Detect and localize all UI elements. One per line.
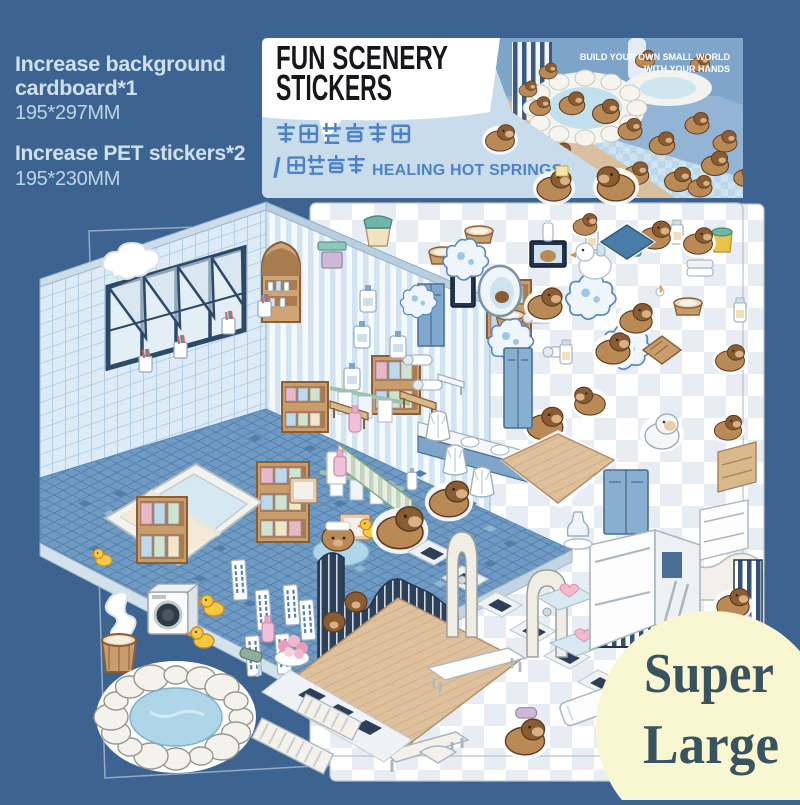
svg-text:Increase PET stickers*2: Increase PET stickers*2 bbox=[15, 142, 245, 165]
svg-text:195*230MM: 195*230MM bbox=[15, 168, 120, 190]
svg-text:195*297MM: 195*297MM bbox=[15, 102, 120, 124]
svg-text:cardboard*1: cardboard*1 bbox=[15, 76, 138, 100]
svg-text:HEALING HOT SPRINGS: HEALING HOT SPRINGS bbox=[372, 162, 563, 179]
svg-text:BUILD YOUR OWN SMALL WORLD: BUILD YOUR OWN SMALL WORLD bbox=[580, 52, 731, 62]
svg-text:Large: Large bbox=[643, 714, 779, 776]
svg-text:Super: Super bbox=[644, 643, 774, 705]
svg-text:WITH YOUR HANDS: WITH YOUR HANDS bbox=[644, 64, 730, 74]
svg-text:/: / bbox=[273, 152, 281, 183]
svg-text:Increase background: Increase background bbox=[15, 52, 226, 76]
svg-text:STICKERS: STICKERS bbox=[276, 67, 392, 108]
